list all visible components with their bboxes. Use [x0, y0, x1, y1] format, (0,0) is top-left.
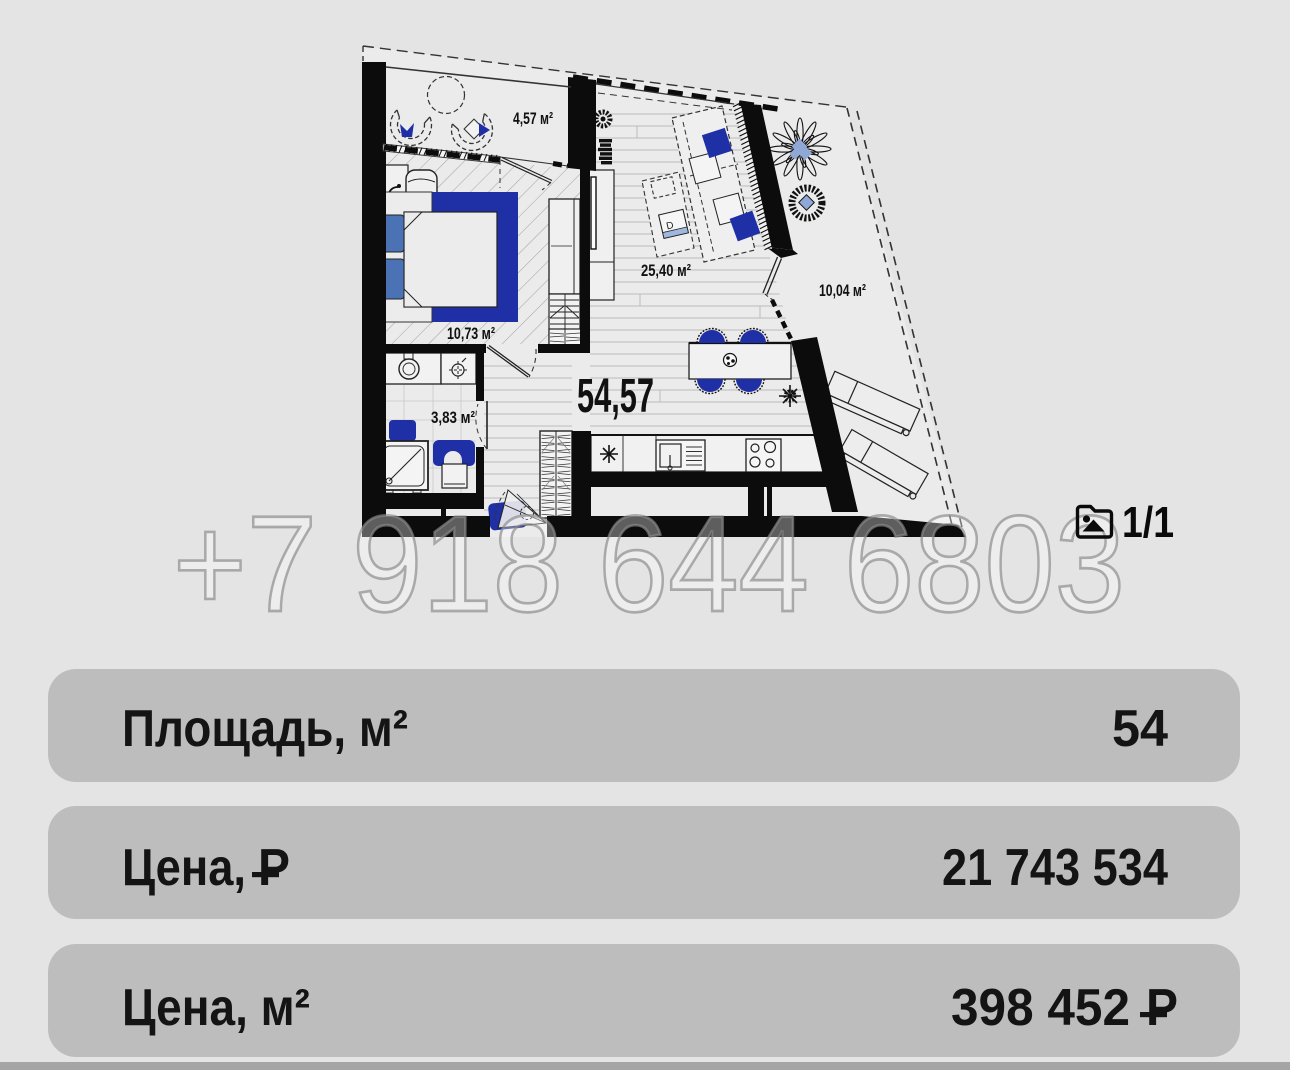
- svg-text:Цена, м²: Цена, м²: [122, 979, 310, 1037]
- svg-text:398 452: 398 452: [951, 979, 1130, 1037]
- svg-text:Р: Р: [258, 839, 290, 897]
- svg-text:3,83 м²: 3,83 м²: [431, 408, 475, 427]
- svg-text:Р: Р: [1146, 979, 1178, 1037]
- svg-text:10,04 м²: 10,04 м²: [819, 281, 866, 300]
- svg-text:54: 54: [1112, 700, 1168, 758]
- svg-text:21 743 534: 21 743 534: [942, 839, 1168, 897]
- svg-text:4,57 м²: 4,57 м²: [513, 109, 553, 128]
- svg-text:+7 918 644 6803: +7 918 644 6803: [173, 488, 1125, 641]
- svg-text:Цена,: Цена,: [122, 839, 246, 897]
- svg-text:1/1: 1/1: [1122, 498, 1174, 547]
- svg-text:54,57: 54,57: [577, 370, 654, 423]
- svg-text:Площадь, м²: Площадь, м²: [122, 700, 408, 758]
- svg-text:25,40 м²: 25,40 м²: [641, 261, 691, 280]
- svg-text:10,73 м²: 10,73 м²: [447, 324, 495, 343]
